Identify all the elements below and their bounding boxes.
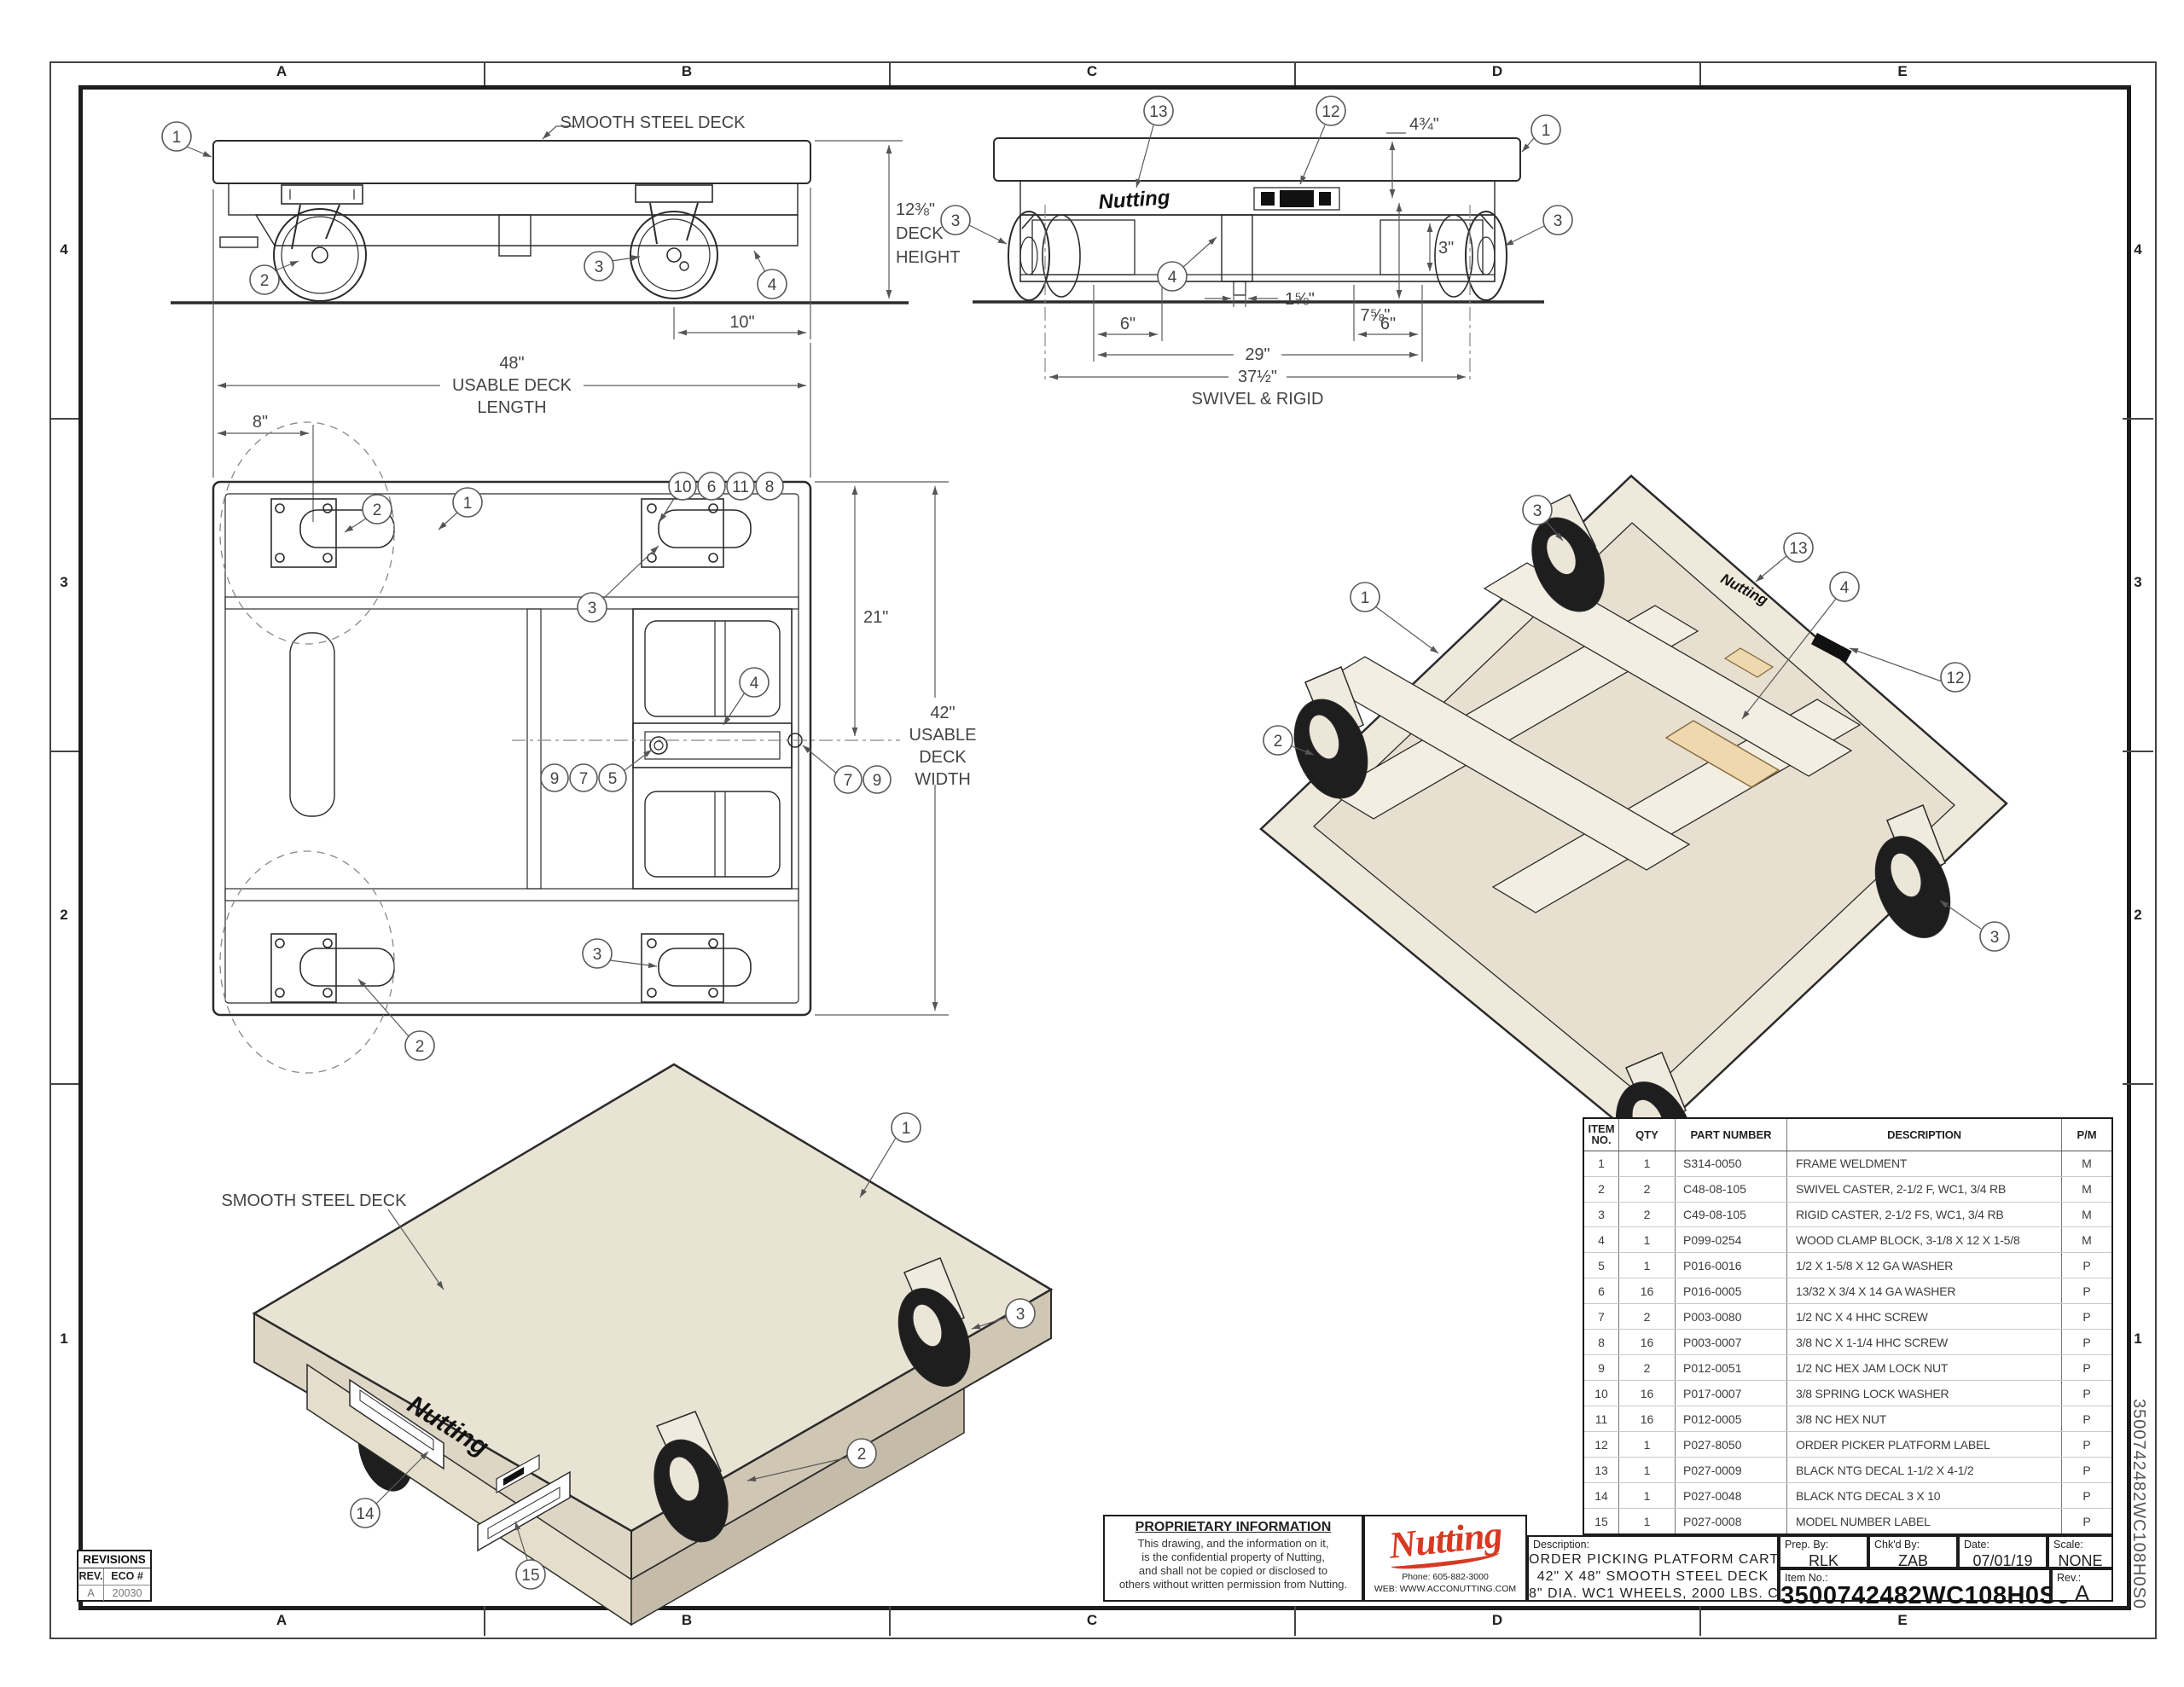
dim-wheel-offset: 10" — [729, 313, 754, 332]
bom-row: 22C48-08-105SWIVEL CASTER, 2-1/2 F, WC1,… — [1584, 1177, 2111, 1203]
proprietary-line: others without written permission from N… — [1105, 1578, 1362, 1591]
balloon-13: 13 — [1149, 103, 1167, 121]
revisions-table: REVISIONS REV. ECO # A 20030 — [77, 1550, 152, 1602]
dim-six-left: 6" — [1120, 315, 1136, 333]
side-elevation-view — [171, 141, 909, 303]
balloon-11: 11 — [732, 478, 749, 496]
balloon-14: 14 — [356, 1505, 375, 1523]
dim-deck-length: 48" — [499, 354, 524, 373]
bom-row: 51P016-00161/2 X 1-5/8 X 12 GA WASHERP — [1584, 1253, 2111, 1278]
dim-deck-length-word1: USABLE DECK — [452, 376, 572, 395]
bom-header-row: ITEMNO. QTY PART NUMBER DESCRIPTION P/M — [1584, 1119, 2111, 1151]
revision-box: Rev.: A — [2051, 1568, 2113, 1602]
proprietary-line: and shall not be copied or disclosed to — [1105, 1564, 1362, 1578]
balloon-9: 9 — [550, 770, 560, 788]
balloon-4: 4 — [768, 276, 777, 294]
bom-row: 41P099-0254WOOD CLAMP BLOCK, 3-1/8 X 12 … — [1584, 1227, 2111, 1253]
proprietary-information-box: PROPRIETARY INFORMATION This drawing, an… — [1103, 1515, 1363, 1602]
dim-deck-height-word1: DECK — [896, 224, 944, 243]
bom-col-part: PART NUMBER — [1676, 1119, 1787, 1151]
revision-value: A — [2053, 1580, 2111, 1607]
dim-stem-offset: 1⅝" — [1285, 290, 1315, 309]
balloon-12: 12 — [1946, 670, 1964, 687]
balloon-2: 2 — [373, 501, 382, 519]
plan-view — [213, 482, 810, 1015]
balloon-10: 10 — [673, 478, 691, 496]
balloon-4: 4 — [1168, 269, 1177, 287]
balloon-1: 1 — [1542, 122, 1551, 140]
description-line: 8" DIA. WC1 WHEELS, 2000 LBS. CAPACITY — [1529, 1586, 1777, 1603]
balloon-4: 4 — [750, 675, 759, 693]
prep-by-box: Prep. By: RLK — [1779, 1535, 1868, 1568]
balloon-15: 15 — [521, 1567, 539, 1585]
dim-rigid-span: 29" — [1245, 345, 1269, 364]
balloon-7: 7 — [844, 772, 853, 790]
dim-half-width: 21" — [863, 608, 888, 627]
bom-col-item: ITEM — [1588, 1123, 1614, 1135]
balloon-2: 2 — [260, 272, 270, 290]
bill-of-materials-table: ITEMNO. QTY PART NUMBER DESCRIPTION P/M … — [1583, 1117, 2113, 1535]
description-box: Description: ORDER PICKING PLATFORM CART… — [1527, 1535, 1779, 1602]
prep-by-label: Prep. By: — [1780, 1537, 1867, 1551]
bom-row: 816P003-00073/8 NC X 1-1/4 HHC SCREWP — [1584, 1330, 2111, 1355]
balloon-2: 2 — [415, 1038, 425, 1056]
dim-caster-offset: 8" — [253, 413, 268, 432]
smooth-steel-deck-label: SMOOTH STEEL DECK — [560, 113, 746, 132]
balloon-6: 6 — [707, 478, 717, 496]
smooth-steel-deck-label-iso: SMOOTH STEEL DECK — [221, 1191, 407, 1210]
proprietary-title: PROPRIETARY INFORMATION — [1105, 1520, 1362, 1535]
dim-deck-height-word2: HEIGHT — [896, 248, 961, 267]
bom-row: 1116P012-00053/8 NC HEX NUTP — [1584, 1406, 2111, 1432]
bom-row: 151P027-0008MODEL NUMBER LABELP — [1584, 1509, 2111, 1533]
balloon-3: 3 — [1990, 929, 2000, 947]
dim-overall-span: 37½" — [1238, 368, 1277, 386]
revisions-header-row: REV. ECO # — [78, 1568, 150, 1586]
swivel-rigid-label: SWIVEL & RIGID — [1192, 390, 1324, 409]
balloon-3: 3 — [595, 258, 604, 276]
dim-deck-width-word2: DECK — [919, 748, 967, 767]
dim-deck-width: 42" — [930, 704, 955, 722]
bom-row: 32C49-08-105RIGID CASTER, 2-1/2 FS, WC1,… — [1584, 1203, 2111, 1228]
balloon-12: 12 — [1321, 103, 1339, 121]
balloon-3: 3 — [1554, 212, 1563, 230]
dim-deck-width-word3: WIDTH — [915, 770, 971, 789]
balloon-3: 3 — [1016, 1306, 1025, 1324]
balloon-9: 9 — [873, 772, 882, 790]
bom-row: 1016P017-00073/8 SPRING LOCK WASHERP — [1584, 1381, 2111, 1406]
checked-by-label: Chk'd By: — [1870, 1537, 1956, 1551]
description-label: Description: — [1529, 1537, 1777, 1551]
revisions-col-rev: REV. — [78, 1568, 104, 1585]
revisions-col-eco: ECO # — [104, 1568, 150, 1585]
bom-row: 72P003-00801/2 NC X 4 HHC SCREWP — [1584, 1304, 2111, 1330]
balloon-1: 1 — [1361, 589, 1370, 607]
end-elevation-view — [973, 138, 1544, 302]
dim-deck-height: 12⅜" — [896, 200, 935, 219]
balloon-7: 7 — [579, 770, 589, 788]
bom-row: 141P027-0048BLACK NTG DECAL 3 X 10P — [1584, 1483, 2111, 1509]
scale-box: Scale: NONE — [2047, 1535, 2113, 1568]
logo-phone: Phone: 605-882-3000 — [1365, 1571, 1525, 1583]
bom-col-qty: QTY — [1619, 1119, 1676, 1151]
end-view-leaders — [969, 125, 1544, 267]
balloon-4: 4 — [1840, 579, 1850, 597]
revisions-title: REVISIONS — [78, 1551, 150, 1568]
bom-row: 92P012-00511/2 NC HEX JAM LOCK NUTP — [1584, 1355, 2111, 1381]
dim-six-right: 6" — [1380, 315, 1396, 333]
prep-by-value: RLK — [1780, 1552, 1867, 1570]
balloon-1: 1 — [172, 129, 182, 147]
balloon-3: 3 — [588, 600, 597, 617]
scale-value: NONE — [2049, 1552, 2111, 1570]
company-logo-box: Nutting Phone: 605-882-3000 WEB: WWW.ACC… — [1363, 1515, 1527, 1602]
balloon-13: 13 — [1789, 540, 1807, 558]
bom-col-pm: P/M — [2062, 1119, 2111, 1151]
dim-deck-length-word2: LENGTH — [477, 398, 546, 417]
balloon-3: 3 — [1533, 502, 1542, 520]
revision-letter: A — [78, 1586, 104, 1601]
proprietary-line: is the confidential property of Nutting, — [1105, 1551, 1362, 1564]
revisions-row: A 20030 — [78, 1586, 150, 1601]
bom-row: 121P027-8050ORDER PICKER PLATFORM LABELP — [1584, 1432, 2111, 1458]
dim-box-height: 3" — [1438, 239, 1454, 258]
item-number-value: 3500742482WC108H0S0 — [1780, 1582, 2049, 1610]
balloon-2: 2 — [857, 1446, 867, 1464]
drawing-sheet: A B C D E A B C D E 4 3 2 1 4 3 2 1 3500… — [0, 0, 2184, 1687]
item-number-box: Item No.: 3500742482WC108H0S0 — [1779, 1568, 2051, 1602]
balloon-3: 3 — [593, 946, 602, 964]
checked-by-value: ZAB — [1870, 1552, 1956, 1570]
balloon-1: 1 — [902, 1120, 911, 1138]
revision-eco-number: 20030 — [104, 1586, 150, 1601]
description-line: 42" X 48" SMOOTH STEEL DECK — [1529, 1568, 1777, 1586]
proprietary-line: This drawing, and the information on it, — [1105, 1537, 1362, 1551]
bom-row: 11S314-0050FRAME WELDMENTM — [1584, 1151, 2111, 1177]
iso-top-view: Nutting — [254, 1064, 1051, 1625]
balloon-1: 1 — [463, 495, 473, 513]
dim-top-height: 4¾" — [1409, 115, 1439, 134]
balloon-8: 8 — [765, 478, 775, 496]
date-label: Date: — [1960, 1537, 2046, 1551]
balloon-5: 5 — [608, 770, 618, 788]
description-line: ORDER PICKING PLATFORM CART — [1529, 1551, 1777, 1568]
balloon-3: 3 — [951, 212, 961, 230]
checked-by-box: Chk'd By: ZAB — [1868, 1535, 1958, 1568]
date-value: 07/01/19 — [1960, 1552, 2046, 1570]
dim-deck-width-word1: USABLE — [909, 726, 977, 745]
bom-row: 131P027-0009BLACK NTG DECAL 1-1/2 X 4-1/… — [1584, 1458, 2111, 1483]
balloon-2: 2 — [1274, 733, 1283, 751]
scale-label: Scale: — [2049, 1537, 2111, 1551]
end-view-nutting-decal: Nutting — [1098, 186, 1171, 214]
date-box: Date: 07/01/19 — [1958, 1535, 2047, 1568]
bom-col-desc: DESCRIPTION — [1787, 1119, 2062, 1151]
logo-web: WEB: WWW.ACCONUTTING.COM — [1365, 1583, 1525, 1595]
bom-row: 616P016-000513/32 X 3/4 X 14 GA WASHERP — [1584, 1278, 2111, 1304]
